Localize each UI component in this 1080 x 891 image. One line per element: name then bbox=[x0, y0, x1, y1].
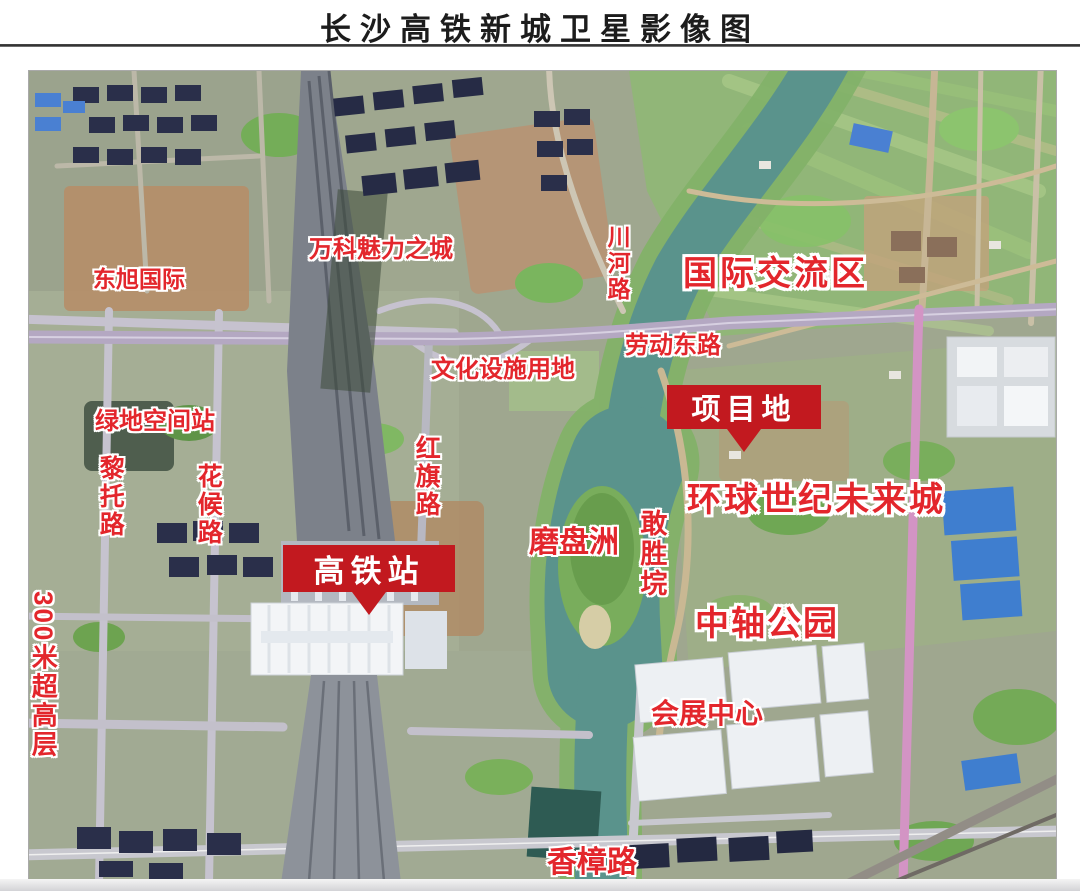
label-greenland-space-station: 绿地空间站 bbox=[95, 409, 215, 434]
satellite-image bbox=[29, 71, 1056, 879]
label-international-exchange-zone: 国际交流区 bbox=[683, 257, 868, 293]
satellite-map: 东旭国际 万科魅力之城 川河路 国际交流区 劳动东路 文化设施用地 绿地空间站 … bbox=[28, 70, 1057, 880]
down-arrow-icon bbox=[352, 592, 386, 615]
label-300m-super-highrise: 300米超高层 bbox=[29, 591, 56, 759]
label-xiangzhang-road: 香樟路 bbox=[547, 847, 637, 879]
label-huahou-road: 花候路 bbox=[195, 463, 221, 547]
label-central-axis-park: 中轴公园 bbox=[695, 607, 839, 643]
bottom-edge bbox=[0, 879, 1080, 891]
label-convention-center: 会展中心 bbox=[651, 699, 763, 728]
label-global-century-future-city: 环球世纪未来城 bbox=[687, 483, 946, 519]
label-ganshengyuan: 敢胜垸 bbox=[637, 509, 665, 599]
callout-project-site-label: 项目地 bbox=[691, 386, 796, 428]
label-lituo-road: 黎托路 bbox=[97, 455, 123, 539]
page-title: 长沙高铁新城卫星影像图 bbox=[0, 4, 1080, 49]
label-vanke-charm-city: 万科魅力之城 bbox=[309, 237, 453, 262]
label-hongqi-road: 红旗路 bbox=[413, 435, 439, 519]
callout-project-site: 项目地 bbox=[667, 385, 821, 429]
callout-hsr-station: 高铁站 bbox=[283, 545, 455, 592]
down-arrow-icon bbox=[727, 429, 761, 452]
label-dongxu-international: 东旭国际 bbox=[93, 267, 185, 291]
label-chuanhe-road: 川河路 bbox=[605, 225, 629, 303]
title-divider bbox=[0, 44, 1080, 47]
label-cultural-facilities-land: 文化设施用地 bbox=[431, 357, 575, 382]
label-mopanzhou-islet: 磨盘洲 bbox=[529, 527, 619, 559]
label-laodong-east-road: 劳动东路 bbox=[625, 333, 721, 358]
callout-hsr-station-label: 高铁站 bbox=[314, 546, 425, 591]
